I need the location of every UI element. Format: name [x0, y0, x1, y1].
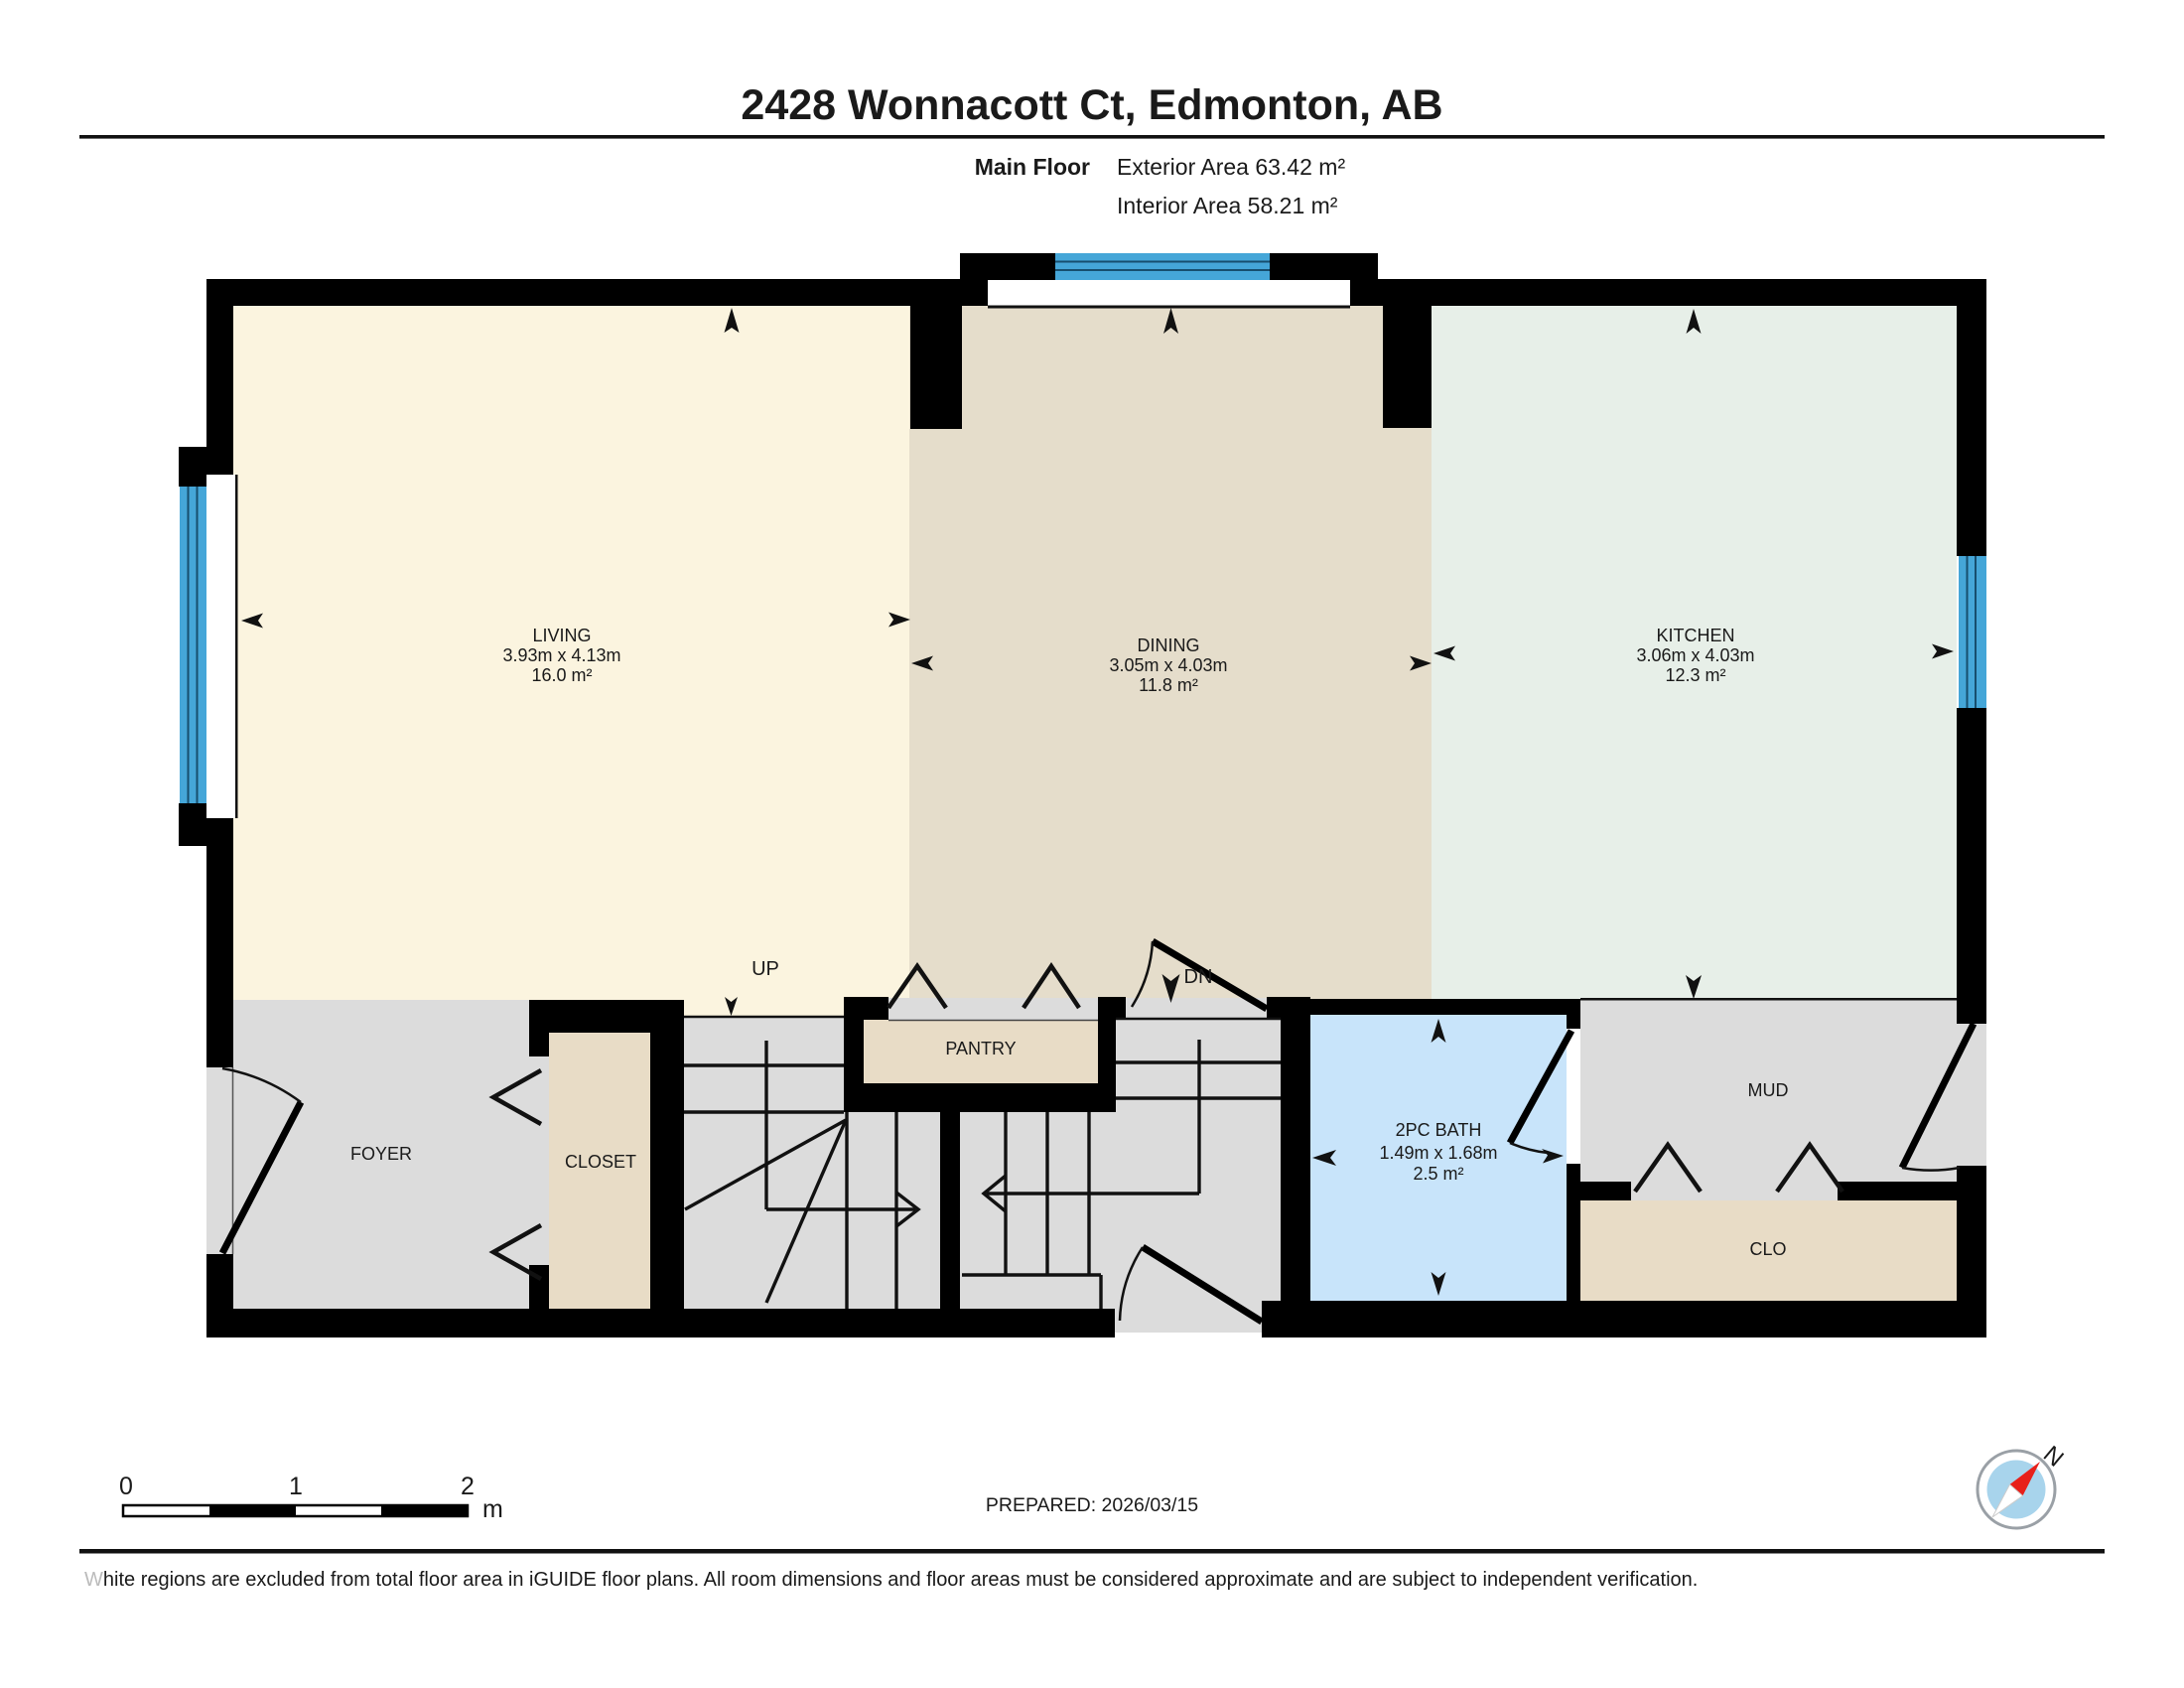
svg-text:m: m: [482, 1495, 503, 1523]
svg-text:2428 Wonnacott Ct, Edmonton, A: 2428 Wonnacott Ct, Edmonton, AB: [741, 81, 1442, 129]
svg-text:2: 2: [461, 1473, 475, 1500]
svg-text:MUD: MUD: [1748, 1080, 1789, 1100]
svg-text:3.05m x 4.03m: 3.05m x 4.03m: [1109, 655, 1227, 675]
svg-text:KITCHEN: KITCHEN: [1656, 626, 1734, 645]
svg-text:1.49m x 1.68m: 1.49m x 1.68m: [1379, 1143, 1497, 1163]
svg-text:FOYER: FOYER: [350, 1144, 412, 1164]
svg-text:3.06m x 4.03m: 3.06m x 4.03m: [1636, 645, 1754, 665]
svg-text:11.8 m²: 11.8 m²: [1139, 675, 1198, 695]
svg-text:PANTRY: PANTRY: [945, 1039, 1016, 1058]
svg-text:0: 0: [119, 1473, 133, 1500]
svg-text:PREPARED: 2026/03/15: PREPARED: 2026/03/15: [986, 1494, 1198, 1516]
svg-text:Main Floor: Main Floor: [975, 154, 1090, 180]
svg-text:UP: UP: [751, 958, 779, 980]
svg-text:LIVING: LIVING: [532, 626, 591, 645]
svg-text:Interior Area 58.21 m²: Interior Area 58.21 m²: [1117, 193, 1338, 218]
svg-text:CLOSET: CLOSET: [565, 1152, 636, 1172]
svg-text:12.3 m²: 12.3 m²: [1665, 665, 1725, 685]
svg-text:Exterior Area 63.42 m²: Exterior Area 63.42 m²: [1117, 154, 1345, 180]
svg-text:DN: DN: [1184, 966, 1213, 988]
svg-text:3.93m x 4.13m: 3.93m x 4.13m: [502, 645, 620, 665]
svg-text:16.0 m²: 16.0 m²: [531, 665, 592, 685]
svg-text:DINING: DINING: [1138, 635, 1200, 655]
svg-text:1: 1: [289, 1473, 303, 1500]
svg-text:2.5 m²: 2.5 m²: [1413, 1164, 1463, 1184]
svg-text:CLO: CLO: [1749, 1239, 1786, 1259]
svg-text:2PC BATH: 2PC BATH: [1396, 1120, 1482, 1140]
svg-text:White regions are excluded fro: White regions are excluded from total fl…: [84, 1569, 1698, 1591]
